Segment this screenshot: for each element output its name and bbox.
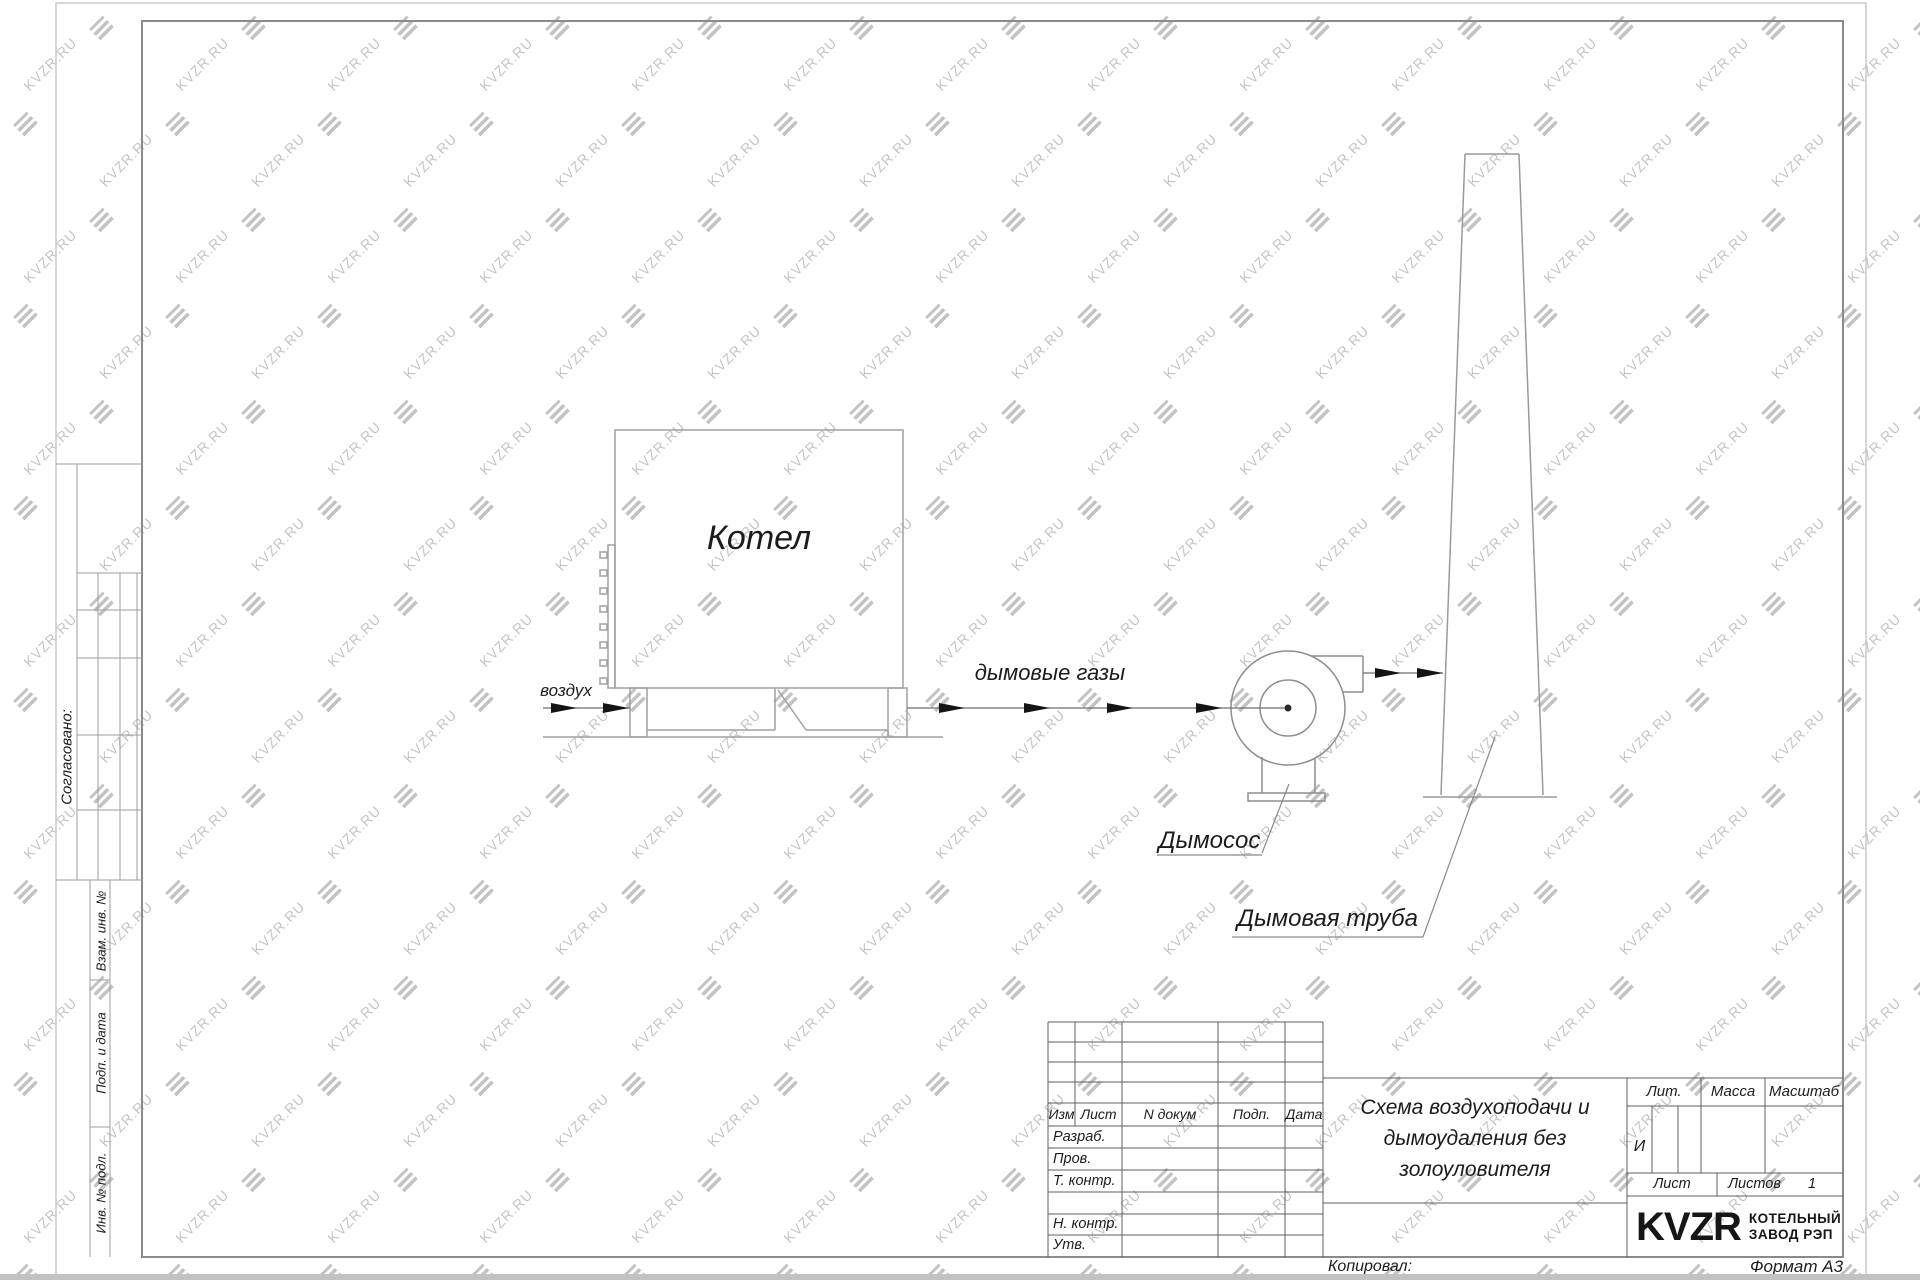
- drawing-line: [551, 703, 577, 713]
- header-ndokum: N докум: [1122, 1106, 1218, 1122]
- doc-title-line1: Схема воздухоподачи и: [1323, 1092, 1627, 1123]
- company-logo: KVZR КОТЕЛЬНЫЙ ЗАВОД РЭП: [1632, 1198, 1840, 1255]
- drawing-line: [1196, 703, 1222, 713]
- boiler-right-leg: [888, 688, 907, 737]
- drawing-line: [600, 588, 607, 594]
- row-nkontr: Н. контр.: [1053, 1216, 1118, 1232]
- header-data: Дата: [1285, 1106, 1323, 1122]
- drawing-line: [600, 570, 607, 576]
- drawing-line: [1441, 154, 1465, 795]
- brand-text: KVZR: [1636, 1207, 1741, 1247]
- drawing-line: [600, 660, 607, 666]
- drawing-line: [939, 703, 965, 713]
- fan-base-plate: [1248, 793, 1325, 801]
- drawing-line: [600, 624, 607, 630]
- fan-label: Дымосос: [1157, 827, 1262, 855]
- left-margin-grid: [56, 464, 142, 1257]
- header-list: Лист: [1075, 1106, 1122, 1122]
- lit-value: И: [1627, 1138, 1652, 1156]
- drawing-line: [142, 21, 1843, 1257]
- boiler-label: Котел: [615, 519, 903, 558]
- fan-outline: [1231, 651, 1363, 801]
- drawing-line: [56, 3, 1866, 1276]
- drawing-line: [1107, 703, 1133, 713]
- sheets-value: 1: [1792, 1176, 1832, 1192]
- drawing-line: [1024, 703, 1050, 713]
- scale-header: Масштаб: [1765, 1083, 1843, 1100]
- boiler-hopper-slope: [778, 690, 806, 730]
- doc-title: Схема воздухоподачи и дымоудаления без з…: [1323, 1092, 1627, 1185]
- drawing-line: [1519, 154, 1543, 795]
- podp-data-label: Подп. и дата: [94, 1012, 109, 1093]
- lit-header: Лит.: [1627, 1083, 1701, 1100]
- chimney-label: Дымовая труба: [1232, 905, 1423, 933]
- drawing-line: [603, 703, 629, 713]
- doc-title-line3: золоуловителя: [1323, 1154, 1627, 1185]
- sheet-bottom-edge: [0, 1274, 1920, 1280]
- sheet-border: [56, 3, 1866, 1276]
- fan-hub-dot: [1285, 705, 1292, 712]
- boiler-burner-strip: [608, 545, 615, 688]
- sheets-label: Листов: [1717, 1176, 1792, 1192]
- drawing-line: [600, 552, 607, 558]
- chimney-outline: [1423, 154, 1557, 797]
- company-name: КОТЕЛЬНЫЙ ЗАВОД РЭП: [1749, 1211, 1841, 1243]
- sheet-label: Лист: [1627, 1176, 1717, 1192]
- drawing-line: [1417, 668, 1443, 678]
- boiler-left-leg: [630, 688, 647, 737]
- flue-gases-label: дымовые газы: [955, 660, 1145, 686]
- row-prov: Пров.: [1053, 1151, 1091, 1167]
- row-utv: Утв.: [1053, 1237, 1086, 1253]
- company-name-line1: КОТЕЛЬНЫЙ: [1749, 1211, 1841, 1226]
- drawing-line: [1375, 668, 1401, 678]
- agreed-label: Согласовано:: [59, 709, 76, 805]
- boiler-body: [615, 430, 903, 688]
- row-tkontr: Т. контр.: [1053, 1173, 1116, 1189]
- drawing-sheet: KVZR.RUKVZR.RUKVZR.RUKVZR.RUKVZR.RUKVZR.…: [0, 0, 1920, 1280]
- doc-title-line2: дымоудаления без: [1323, 1123, 1627, 1154]
- vzam-inv-label: Взам. инв. №: [94, 891, 109, 971]
- company-name-line2: ЗАВОД РЭП: [1749, 1227, 1833, 1242]
- header-izm: Изм: [1048, 1106, 1075, 1122]
- air-label: воздух: [528, 681, 604, 701]
- drawing-line: [600, 642, 607, 648]
- mass-header: Масса: [1701, 1083, 1765, 1100]
- row-razrab: Разраб.: [1053, 1129, 1105, 1145]
- fan-label-leader: [1262, 784, 1289, 853]
- chimney-label-leader: [1423, 737, 1495, 937]
- inv-podl-label: Инв. № подл.: [94, 1153, 109, 1234]
- header-podp: Подп.: [1218, 1106, 1285, 1122]
- drawing-line: [600, 606, 607, 612]
- drawing-frame: [142, 21, 1843, 1257]
